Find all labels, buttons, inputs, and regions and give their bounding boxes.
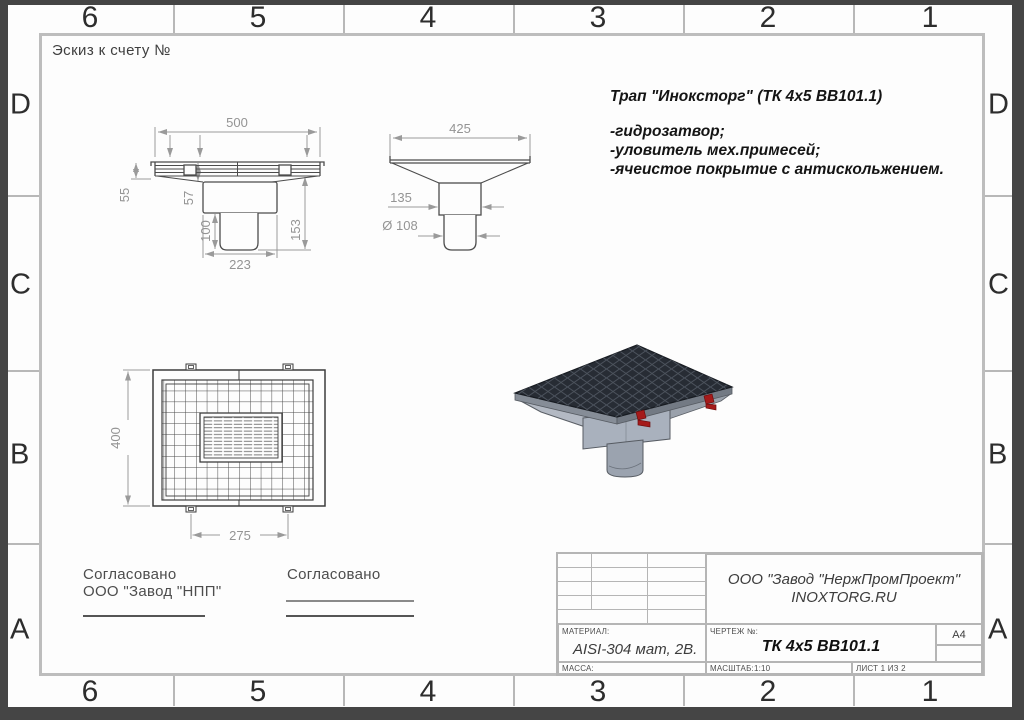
approval-left-line2: ООО "Завод "НПП" <box>83 583 221 600</box>
product-title: Трап "Иноксторг" (ТК 4х5 ВВ101.1) <box>610 88 1005 106</box>
format-value: А4 <box>937 629 981 641</box>
zone-number-top: 2 <box>760 4 777 32</box>
mass-label: МАССА: <box>562 664 594 673</box>
row-letter-right: C <box>988 271 1009 300</box>
sheet-count-label: ЛИСТ 1 ИЗ 2 <box>856 664 906 673</box>
row-letter-left: A <box>10 616 29 645</box>
revision-table <box>558 554 706 624</box>
drain-3d-render <box>483 342 778 520</box>
approval-right: Согласовано <box>287 566 381 583</box>
drawing-number-label: ЧЕРТЕЖ №: <box>710 627 758 636</box>
scale-cell: МАСШТАБ:1:10 <box>706 662 852 674</box>
zone-number-top: 4 <box>420 4 437 32</box>
format-cell-empty <box>936 645 982 662</box>
row-letter-right: A <box>988 616 1007 645</box>
row-letter-left: B <box>10 441 29 470</box>
signature-line <box>83 615 205 617</box>
feature-item: -ячеистое покрытие с антискольжением. <box>610 160 1005 179</box>
row-tick <box>985 370 1012 372</box>
svg-text:275: 275 <box>229 528 251 543</box>
zone-number-top: 3 <box>590 4 607 32</box>
zone-divider <box>853 676 855 706</box>
zone-divider <box>683 5 685 33</box>
plan-outline <box>153 364 325 512</box>
zone-number-bottom: 2 <box>760 678 777 706</box>
title-block: ООО "Завод "НержПромПроект" INOXTORG.RU … <box>556 552 984 676</box>
zone-divider <box>683 676 685 706</box>
feature-item: -гидрозатвор; <box>610 122 1005 141</box>
material-cell: МАТЕРИАЛ: AISI-304 мат, 2В. <box>558 624 706 662</box>
row-letter-right: B <box>988 441 1007 470</box>
material-value: AISI-304 мат, 2В. <box>573 641 697 658</box>
approval-left-line1: Согласовано <box>83 566 221 583</box>
zone-divider <box>513 676 515 706</box>
drawing-number-cell: ЧЕРТЕЖ №: ТК 4х5 ВВ101.1 <box>706 624 936 662</box>
drawing-sheet-viewport: 6 5 4 3 2 1 6 5 4 3 2 1 D C B A D C B A … <box>0 0 1024 720</box>
zone-number-bottom: 6 <box>82 678 99 706</box>
front-section-view: 500 55 57 100 153 223 <box>105 113 330 275</box>
row-tick <box>8 195 39 197</box>
zone-number-bottom: 4 <box>420 678 437 706</box>
svg-text:100: 100 <box>198 220 213 242</box>
svg-text:55: 55 <box>117 188 132 202</box>
row-letter-left: D <box>10 91 31 120</box>
zone-number-bottom: 3 <box>590 678 607 706</box>
zone-number-bottom: 1 <box>922 678 939 706</box>
plan-view: 400 275 <box>88 358 350 558</box>
sketch-invoice-label: Эскиз к счету № <box>52 42 171 59</box>
material-label: МАТЕРИАЛ: <box>562 627 609 636</box>
svg-text:135: 135 <box>390 190 412 205</box>
zone-number-bottom: 5 <box>250 678 267 706</box>
sheet-count-cell: ЛИСТ 1 ИЗ 2 <box>852 662 982 674</box>
scale-label: МАСШТАБ:1:10 <box>710 664 770 673</box>
mass-cell: МАССА: <box>558 662 706 674</box>
row-tick <box>8 370 39 372</box>
zone-divider <box>343 676 345 706</box>
row-letter-left: C <box>10 271 31 300</box>
signature-line <box>286 615 414 617</box>
signature-line <box>286 600 414 602</box>
zone-divider <box>173 5 175 33</box>
svg-text:400: 400 <box>108 427 123 449</box>
svg-text:Ø 108: Ø 108 <box>382 218 417 233</box>
side-section-view: 425 135 Ø 108 <box>378 110 578 275</box>
feature-item: -уловитель мех.примесей; <box>610 141 1005 160</box>
svg-text:223: 223 <box>229 257 251 272</box>
approval-right-line1: Согласовано <box>287 566 381 583</box>
format-cell: А4 <box>936 624 982 645</box>
zone-divider <box>343 5 345 33</box>
company-site: INOXTORG.RU <box>791 589 897 607</box>
row-tick <box>985 195 1012 197</box>
svg-text:153: 153 <box>288 219 303 241</box>
zone-number-top: 6 <box>82 4 99 32</box>
zone-divider <box>173 676 175 706</box>
product-description: Трап "Иноксторг" (ТК 4х5 ВВ101.1) -гидро… <box>610 88 1005 179</box>
approval-left: Согласовано ООО "Завод "НПП" <box>83 566 221 600</box>
svg-text:57: 57 <box>181 191 196 205</box>
row-tick <box>985 543 1012 545</box>
company-name: ООО "Завод "НержПромПроект" <box>728 571 960 589</box>
zone-divider <box>513 5 515 33</box>
row-tick <box>8 543 39 545</box>
zone-number-top: 5 <box>250 4 267 32</box>
svg-text:425: 425 <box>449 121 471 136</box>
svg-text:500: 500 <box>226 115 248 130</box>
zone-divider <box>853 5 855 33</box>
drawing-number-value: ТК 4х5 ВВ101.1 <box>707 638 935 656</box>
company-cell: ООО "Завод "НержПромПроект" INOXTORG.RU <box>706 554 982 624</box>
zone-number-top: 1 <box>922 4 939 32</box>
